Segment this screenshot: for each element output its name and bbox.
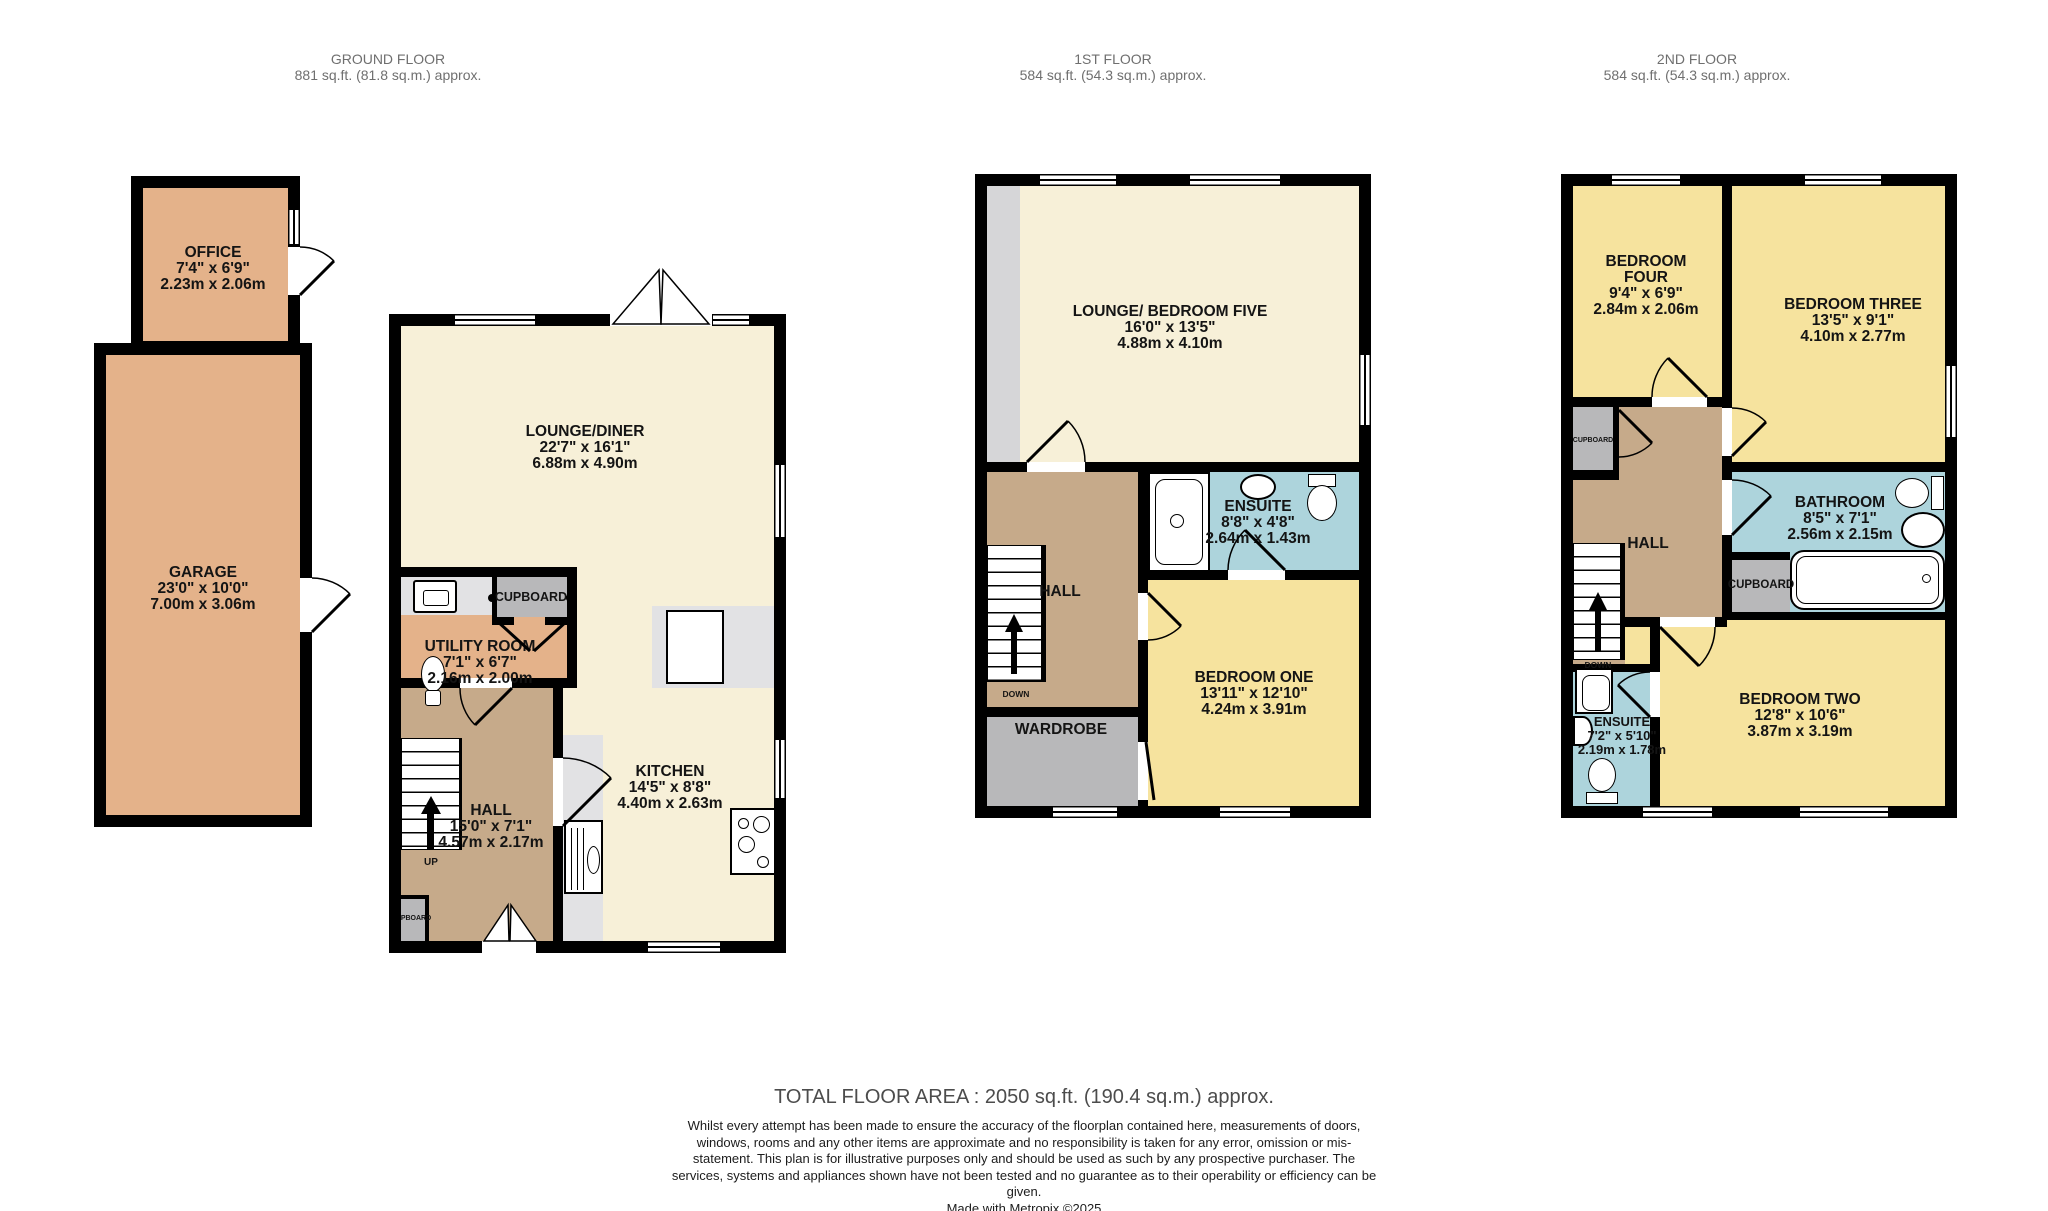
- room-name: KITCHEN: [617, 764, 722, 780]
- shower-icon: [1575, 668, 1613, 714]
- wall: [1613, 407, 1619, 470]
- shower-tray: [1582, 675, 1610, 711]
- toilet-bowl: [1895, 478, 1929, 508]
- toilet-base: [425, 690, 441, 706]
- toilet-icon: [1584, 758, 1626, 804]
- door-opening: [1660, 617, 1715, 627]
- room-dims-ft: 22'7" x 16'1": [526, 440, 645, 456]
- room-dims-m: 7.00m x 3.06m: [150, 597, 255, 613]
- room-name: LOUNGE/DINER: [526, 424, 645, 440]
- room-name: GARAGE: [150, 565, 255, 581]
- first-floor-area: 584 sq.ft. (54.3 sq.m.) approx.: [1020, 68, 1207, 84]
- garage-door-arc: [312, 578, 350, 594]
- room-label-garage: GARAGE 23'0" x 10'0" 7.00m x 3.06m: [150, 565, 255, 613]
- stairs-icon: [1573, 543, 1623, 660]
- room-dims-m: 4.10m x 2.77m: [1784, 329, 1922, 345]
- first-floor-title: 1ST FLOOR: [1020, 52, 1207, 68]
- room-dims-ft: 8'5" x 7'1": [1787, 511, 1892, 527]
- wall: [401, 567, 577, 577]
- window: [288, 210, 300, 244]
- room-label-cupboard-gf: CUPBOARD: [495, 591, 567, 604]
- wall: [1722, 612, 1945, 620]
- room-name: OFFICE: [160, 245, 265, 261]
- sink-icon: [1240, 474, 1276, 500]
- door-opening: [1228, 570, 1285, 580]
- second-floor-area: 584 sq.ft. (54.3 sq.m.) approx.: [1604, 68, 1791, 84]
- hall-2f: [1619, 407, 1727, 627]
- front-door-opening: [482, 941, 536, 953]
- stair-rail: [1041, 545, 1046, 682]
- room-label-lounge-bed5: LOUNGE/ BEDROOM FIVE 16'0" x 13'5" 4.88m…: [1073, 304, 1268, 352]
- window: [1040, 174, 1116, 186]
- office-door-arc: [300, 247, 334, 261]
- room-name: LOUNGE/ BEDROOM FIVE: [1073, 304, 1268, 320]
- total-floor-area: TOTAL FLOOR AREA : 2050 sq.ft. (190.4 sq…: [624, 1086, 1424, 1109]
- door-opening: [1652, 397, 1707, 407]
- door-opening: [1138, 742, 1148, 800]
- window: [648, 941, 720, 953]
- room-dims-ft: 7'2" x 5'10": [1578, 729, 1666, 743]
- room-dims-m: 2.56m x 2.15m: [1787, 527, 1892, 543]
- bath-tap: [1922, 574, 1931, 583]
- door-opening: [1650, 672, 1660, 717]
- disclaimer-text: Whilst every attempt has been made to en…: [669, 1118, 1379, 1201]
- wall: [545, 617, 567, 625]
- toilet-tank: [1586, 792, 1618, 804]
- room-dims-ft: 13'11" x 12'10": [1195, 686, 1314, 702]
- metropix-credit: Made with Metropix ©2025: [624, 1201, 1424, 1211]
- room-label-cupboard-2f-left: CUPBOARD: [1573, 437, 1613, 444]
- window: [774, 465, 786, 537]
- window: [1359, 355, 1371, 425]
- landing-strip: [987, 186, 1020, 462]
- room-dims-m: 2.19m x 1.78m: [1578, 743, 1666, 757]
- room-dims-ft: 15'0" x 7'1": [438, 819, 543, 835]
- room-name: BEDROOM: [1593, 254, 1698, 270]
- room-dims-ft: 14'5" x 8'8": [617, 780, 722, 796]
- toilet-icon: [1895, 476, 1947, 510]
- room-label-ensuite-1f: ENSUITE 8'8" x 4'8" 2.64m x 1.43m: [1205, 499, 1310, 547]
- shower-icon: [1148, 472, 1210, 572]
- first-floor-header: 1ST FLOOR 584 sq.ft. (54.3 sq.m.) approx…: [1020, 52, 1207, 83]
- room-dims-ft: 16'0" x 13'5": [1073, 320, 1268, 336]
- window: [1612, 174, 1680, 186]
- room-name: ENSUITE: [1205, 499, 1310, 515]
- window: [1805, 174, 1881, 186]
- room-name-line2: FOUR: [1593, 270, 1698, 286]
- room-label-bedroom-two: BEDROOM TWO 12'8" x 10'6" 3.87m x 3.19m: [1739, 692, 1860, 740]
- room-name: ENSUITE: [1578, 715, 1666, 729]
- stairs-down-label: DOWN: [1003, 690, 1030, 699]
- room-label-lounge-diner: LOUNGE/DINER 22'7" x 16'1" 6.88m x 4.90m: [526, 424, 645, 472]
- room-label-wardrobe: WARDROBE: [1015, 722, 1107, 738]
- french-door-opening: [610, 314, 712, 326]
- door-opening: [1027, 462, 1085, 472]
- room-label-ensuite-2f: ENSUITE 7'2" x 5'10" 2.19m x 1.78m: [1578, 715, 1666, 757]
- room-label-utility: UTILITY ROOM 7'1" x 6'7" 2.16m x 2.00m: [425, 639, 536, 687]
- room-label-hall-2f: HALL: [1627, 536, 1668, 552]
- room-dims-m: 4.40m x 2.63m: [617, 796, 722, 812]
- sink-basin: [423, 590, 449, 606]
- floorplan-canvas: GROUND FLOOR 881 sq.ft. (81.8 sq.m.) app…: [0, 0, 2048, 1211]
- room-name: HALL: [438, 803, 543, 819]
- room-dims-m: 2.84m x 2.06m: [1593, 302, 1698, 318]
- window: [1190, 174, 1280, 186]
- hob-icon: [730, 808, 776, 875]
- wall: [492, 617, 514, 625]
- room-dims-ft: 23'0" x 10'0": [150, 581, 255, 597]
- kitchen-unit: [666, 610, 724, 684]
- window: [774, 740, 786, 798]
- room-name: BEDROOM THREE: [1784, 297, 1922, 313]
- room-dims-ft: 12'8" x 10'6": [1739, 708, 1860, 724]
- stairs-down-label-2f: DOWN: [1585, 661, 1612, 670]
- room-label-bedroom-one: BEDROOM ONE 13'11" x 12'10" 4.24m x 3.91…: [1195, 670, 1314, 718]
- room-dims-m: 2.16m x 2.00m: [425, 671, 536, 687]
- footer: TOTAL FLOOR AREA : 2050 sq.ft. (190.4 sq…: [624, 1086, 1424, 1211]
- room-dims-m: 4.57m x 2.17m: [438, 835, 543, 851]
- stairs-icon: [987, 545, 1043, 682]
- window: [1053, 806, 1117, 818]
- drainer-lines: [571, 828, 584, 890]
- room-dims-m: 3.87m x 3.19m: [1739, 724, 1860, 740]
- room-dims-m: 4.88m x 4.10m: [1073, 336, 1268, 352]
- wall: [1722, 186, 1732, 407]
- room-name: BATHROOM: [1787, 495, 1892, 511]
- door-opening: [1722, 408, 1732, 456]
- hob-ring: [738, 836, 755, 853]
- ground-floor-header: GROUND FLOOR 881 sq.ft. (81.8 sq.m.) app…: [295, 52, 482, 83]
- door-opening: [553, 758, 563, 826]
- room-name: BEDROOM ONE: [1195, 670, 1314, 686]
- door-opening: [1722, 480, 1732, 535]
- sink-drainer-icon: [564, 820, 603, 894]
- pboard-label: PBOARD: [401, 915, 431, 922]
- room-label-bathroom: BATHROOM 8'5" x 7'1" 2.56m x 2.15m: [1787, 495, 1892, 543]
- stair-rail: [1620, 543, 1625, 660]
- window: [713, 314, 749, 326]
- window: [1220, 806, 1290, 818]
- door-opening: [1138, 593, 1148, 640]
- garage-door-leaf: [312, 594, 350, 632]
- office-door-leaf: [300, 261, 334, 295]
- wall: [1722, 462, 1945, 472]
- wall: [567, 567, 577, 688]
- sink-icon: [413, 580, 457, 613]
- hob-ring: [757, 856, 769, 868]
- room-dims-m: 4.24m x 3.91m: [1195, 702, 1314, 718]
- room-label-kitchen: KITCHEN 14'5" x 8'8" 4.40m x 2.63m: [617, 764, 722, 812]
- toilet-bowl: [1307, 485, 1337, 521]
- bath-icon: [1790, 550, 1945, 610]
- second-floor-header: 2ND FLOOR 584 sq.ft. (54.3 sq.m.) approx…: [1604, 52, 1791, 83]
- shower-drain: [1170, 514, 1184, 528]
- room-dims-ft: 7'1" x 6'7": [425, 655, 536, 671]
- room-dims-ft: 9'4" x 6'9": [1593, 286, 1698, 302]
- room-label-cupboard-2f-mid: CUPBOARD: [1728, 579, 1794, 591]
- wall: [1732, 552, 1790, 560]
- room-name: UTILITY ROOM: [425, 639, 536, 655]
- hob-ring: [753, 816, 770, 833]
- room-dims-m: 6.88m x 4.90m: [526, 456, 645, 472]
- toilet-bowl: [1588, 758, 1616, 792]
- ground-floor-title: GROUND FLOOR: [295, 52, 482, 68]
- sink-icon: [1901, 512, 1945, 548]
- room-dims-ft: 13'5" x 9'1": [1784, 313, 1922, 329]
- window: [1800, 806, 1888, 818]
- window: [455, 314, 535, 326]
- room-label-bedroom-three: BEDROOM THREE 13'5" x 9'1" 4.10m x 2.77m: [1784, 297, 1922, 345]
- ground-floor-area: 881 sq.ft. (81.8 sq.m.) approx.: [295, 68, 482, 84]
- room-label-hall-1f: HALL: [1039, 584, 1080, 600]
- sink-basin: [587, 846, 600, 874]
- room-dims-ft: 7'4" x 6'9": [160, 261, 265, 277]
- room-label-office: OFFICE 7'4" x 6'9" 2.23m x 2.06m: [160, 245, 265, 293]
- door-opening: [300, 578, 312, 632]
- room-dims-m: 2.64m x 1.43m: [1205, 531, 1310, 547]
- stairs-up-label: UP: [424, 858, 438, 868]
- room-dims-m: 2.23m x 2.06m: [160, 277, 265, 293]
- room-dims-ft: 8'8" x 4'8": [1205, 515, 1310, 531]
- room-name: BEDROOM TWO: [1739, 692, 1860, 708]
- window: [1643, 806, 1712, 818]
- second-floor-title: 2ND FLOOR: [1604, 52, 1791, 68]
- bath-inner: [1796, 556, 1939, 604]
- hob-ring: [738, 818, 749, 829]
- door-opening: [288, 247, 300, 295]
- toilet-tank: [1931, 476, 1944, 510]
- wall: [987, 707, 1138, 717]
- room-label-hall-gf: HALL 15'0" x 7'1" 4.57m x 2.17m: [438, 803, 543, 851]
- window: [1945, 366, 1957, 437]
- wall: [1573, 470, 1619, 480]
- room-label-bedroom-four: BEDROOM FOUR 9'4" x 6'9" 2.84m x 2.06m: [1593, 254, 1698, 318]
